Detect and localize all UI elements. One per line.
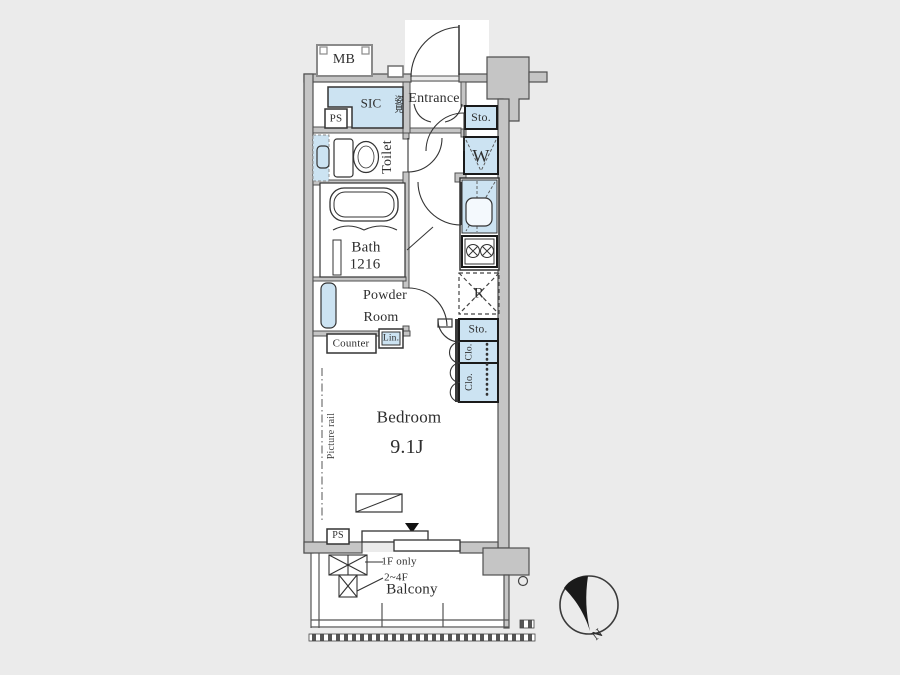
picture-rail-label: Picture rail (327, 413, 337, 460)
meter-box-bolt-left (320, 47, 327, 54)
bedroom-label: Bedroom (377, 409, 442, 426)
bedroom-size-label: 9.1J (390, 437, 424, 457)
meter-box-label: MB (333, 53, 355, 67)
mirror-label: 姿見 (394, 95, 403, 113)
powder-room-label-1: Powder (363, 289, 407, 303)
ground-boundary-hatch (309, 634, 535, 641)
wall-bath-powder (313, 277, 406, 281)
toilet-tank (334, 139, 353, 177)
kitchen-sink (466, 198, 492, 226)
linen-label: Lin. (383, 334, 399, 344)
entrance-label: Entrance (408, 92, 459, 106)
compass-needle (564, 576, 590, 631)
drain-pipe-circle (519, 577, 528, 586)
toilet-control (317, 146, 329, 168)
meter-box-group (317, 45, 403, 77)
bath-counter (333, 240, 341, 275)
counter-label: Counter (333, 339, 370, 350)
wall-entry-right-a (461, 82, 466, 106)
compass-rose (560, 576, 618, 634)
floor-plan-canvas: MB PS SIC 姿見 Entrance Sto. W Toilet Bath… (0, 0, 900, 675)
entrance-threshold (411, 76, 459, 81)
powder-room-label-2: Room (363, 311, 398, 325)
ground-marker-box (520, 620, 534, 628)
intercom-box (388, 66, 403, 77)
door-stop-stub (438, 319, 452, 327)
wall-right (498, 99, 509, 548)
hatch-note-1f: 1F only (381, 557, 416, 568)
wall-entrance-partition (403, 82, 410, 133)
entry-storage-label: Sto. (471, 111, 491, 123)
pipe-space-top-label: PS (330, 114, 343, 125)
washer-space-label: W (472, 147, 489, 165)
wall-left (304, 74, 313, 553)
wall-top-right (459, 74, 489, 82)
washbasin (321, 283, 336, 328)
wall-stub-right (529, 72, 547, 82)
shoe-closet-label: SIC (361, 97, 382, 110)
closet-lower-label: Clo. (465, 373, 475, 391)
balcony-label: Balcony (386, 583, 437, 598)
meter-box-bolt-right (362, 47, 369, 54)
window-pane-right (394, 540, 460, 551)
wall-footing-right (483, 548, 529, 575)
bath-label: Bath (351, 241, 380, 256)
closet-upper-label: Clo. (465, 344, 475, 361)
closet-storage-label: Sto. (468, 324, 487, 336)
pipe-space-bottom-label: PS (332, 531, 344, 541)
toilet-label: Toilet (381, 140, 395, 174)
bath-size-label: 1216 (350, 258, 381, 273)
refrigerator-label: R (474, 287, 484, 302)
